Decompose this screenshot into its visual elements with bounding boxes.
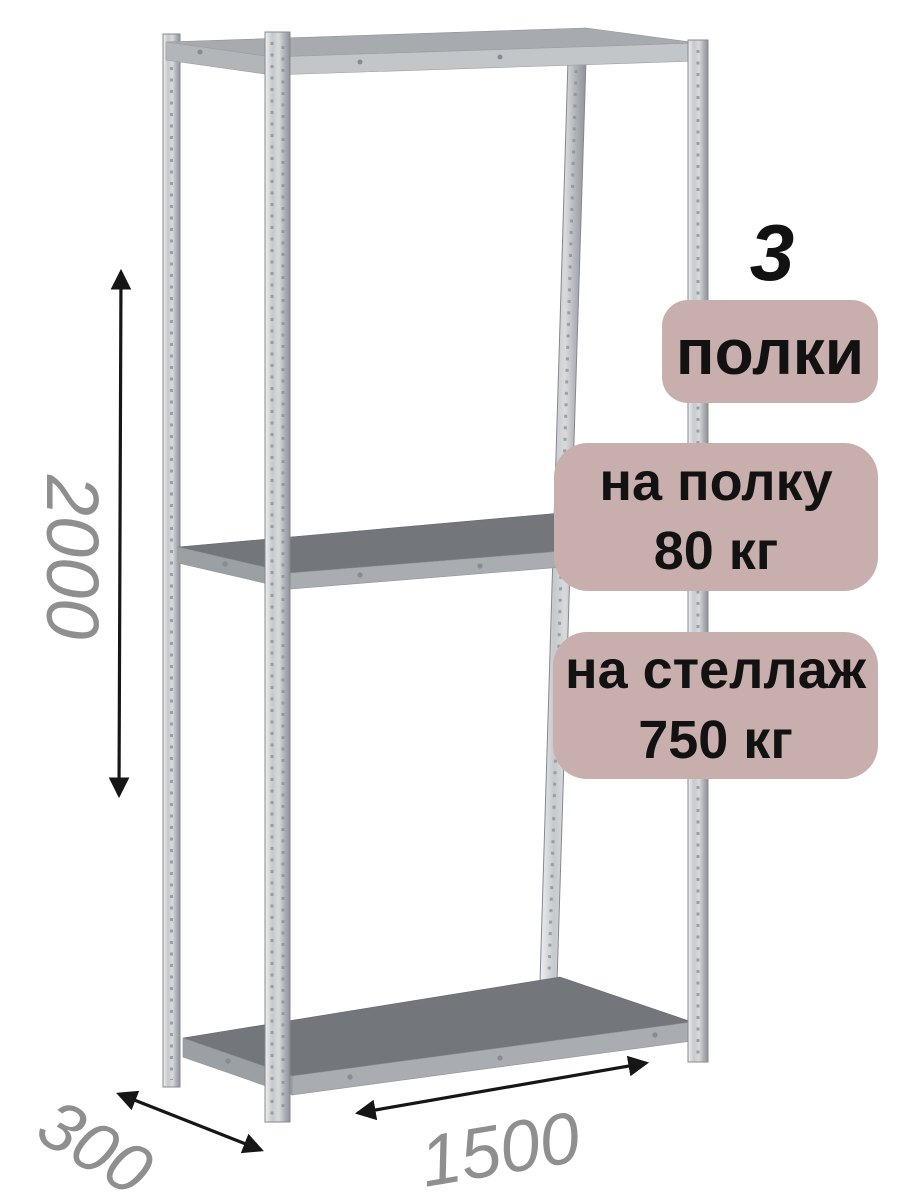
shelf-count-label: полки: [676, 315, 864, 389]
shelf-load-badge: на полку 80 кг: [554, 443, 878, 591]
post-front-left: [265, 32, 290, 1122]
shelf-count-number: 3: [722, 213, 822, 293]
rack-load-line2: 750 кг: [638, 706, 793, 775]
post-back-left: [163, 34, 180, 1087]
product-image: 3 полки на полку 80 кг на стеллаж 750 кг…: [0, 0, 900, 1200]
top-shelf: [166, 28, 698, 75]
rack-load-line1: на стеллаж: [565, 636, 866, 705]
height-dimension-label: 2000: [32, 447, 112, 667]
height-arrow: [119, 272, 121, 795]
shelf-load-line1: на полку: [599, 448, 832, 517]
rack-illustration: [0, 0, 900, 1200]
rack-load-badge: на стеллаж 750 кг: [553, 632, 878, 779]
shelf-load-line2: 80 кг: [654, 517, 779, 586]
shelf-count-badge: полки: [662, 300, 878, 403]
bottom-shelf: [183, 977, 692, 1095]
